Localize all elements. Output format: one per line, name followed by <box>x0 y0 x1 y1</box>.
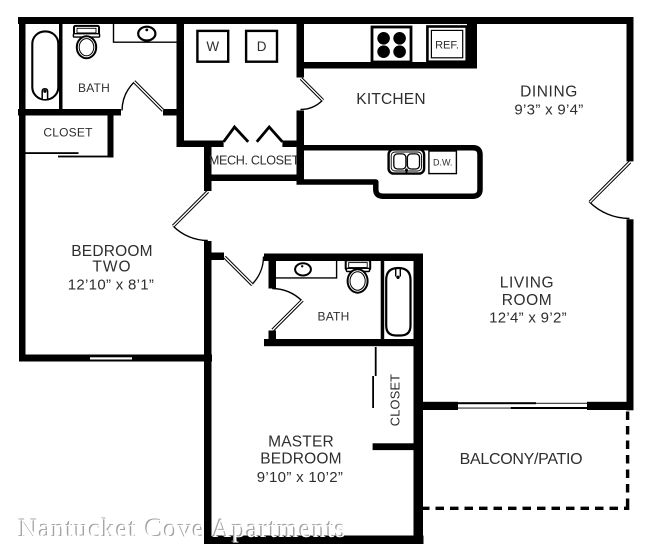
svg-text:W: W <box>206 39 219 54</box>
svg-text:BEDROOM: BEDROOM <box>260 451 342 468</box>
svg-text:BEDROOM: BEDROOM <box>71 243 153 260</box>
svg-text:D: D <box>257 39 267 54</box>
svg-text:BATH: BATH <box>78 81 110 95</box>
svg-text:LIVING: LIVING <box>500 275 554 292</box>
svg-text:MECH. CLOSET: MECH. CLOSET <box>209 153 300 167</box>
svg-text:DINING: DINING <box>520 84 578 101</box>
svg-text:12’4” x 9’2”: 12’4” x 9’2” <box>489 310 567 327</box>
svg-text:CLOSET: CLOSET <box>387 374 402 426</box>
svg-text:CLOSET: CLOSET <box>43 126 93 140</box>
svg-text:MASTER: MASTER <box>268 434 334 451</box>
svg-text:KITCHEN: KITCHEN <box>356 91 425 108</box>
svg-text:REF.: REF. <box>435 39 459 51</box>
svg-text:12’10” x 8’1”: 12’10” x 8’1” <box>68 277 154 294</box>
svg-text:9’10” x 10’2”: 9’10” x 10’2” <box>257 469 343 486</box>
svg-text:ROOM: ROOM <box>502 292 553 309</box>
svg-text:TWO: TWO <box>92 259 131 276</box>
svg-text:BATH: BATH <box>318 310 350 324</box>
svg-text:Nantucket Cove Apartments: Nantucket Cove Apartments <box>19 513 347 543</box>
svg-text:9’3” x 9’4”: 9’3” x 9’4” <box>514 102 583 119</box>
svg-text:BALCONY/PATIO: BALCONY/PATIO <box>460 451 583 468</box>
svg-text:D.W.: D.W. <box>433 158 453 168</box>
